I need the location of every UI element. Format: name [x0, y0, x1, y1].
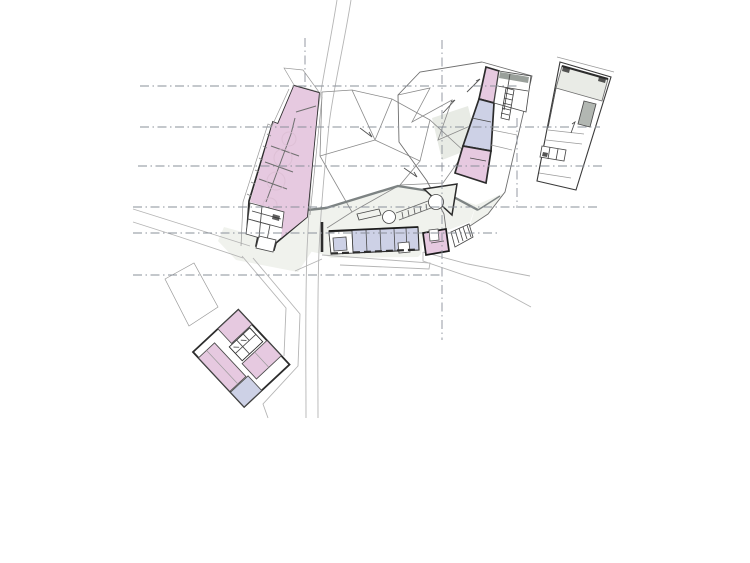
bar-west-inner-room — [333, 237, 347, 251]
east-block-building — [537, 57, 614, 190]
site-plan-canvas — [0, 0, 750, 563]
road-southeast-upper — [423, 252, 530, 276]
museum-east-rooms — [491, 71, 531, 150]
plaza-tree-circle — [383, 211, 396, 224]
site-plan-page — [0, 0, 750, 563]
road-southeast-lower — [423, 252, 531, 307]
kiosk-notch — [429, 229, 439, 241]
bar-building — [329, 227, 419, 254]
terrace-outline — [165, 263, 218, 326]
courtyard-house — [193, 310, 289, 407]
